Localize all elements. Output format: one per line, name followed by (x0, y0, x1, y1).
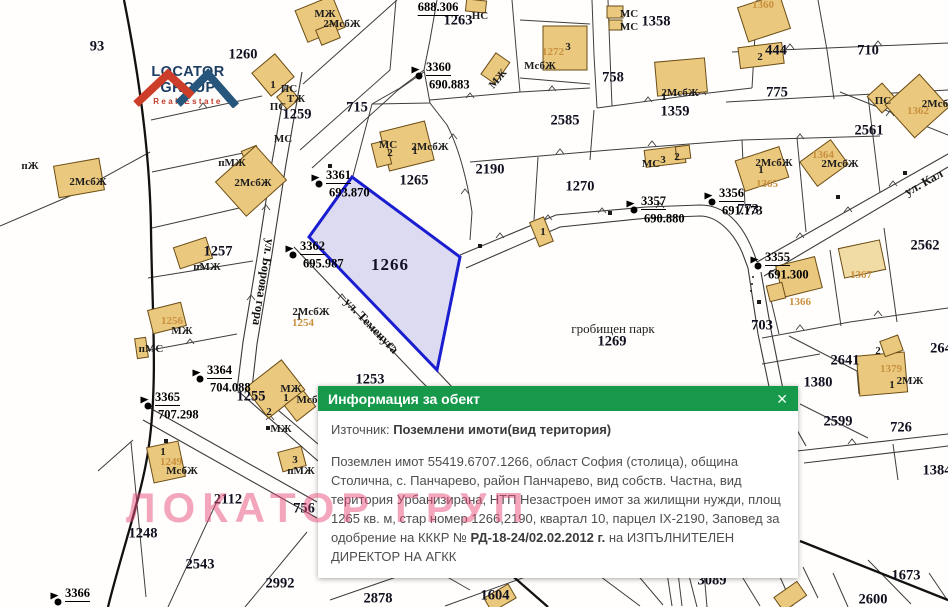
survey-point-icon (197, 376, 204, 383)
building-code: 2МсбЖ (323, 18, 360, 30)
parcel-number: 1270 (566, 179, 595, 196)
survey-point-elevation: 690.880 (644, 212, 685, 227)
parcel-number: 2878 (364, 591, 393, 607)
source-label: Източник: (331, 422, 393, 437)
survey-point-icon (290, 252, 297, 259)
survey-point-id: 3364 (207, 363, 232, 379)
building-number: 1366 (789, 296, 811, 308)
parcel-number-selected: 1266 (371, 255, 409, 275)
building-number: 1367 (850, 269, 872, 281)
parcel-number: 1257 (204, 244, 233, 261)
building-code: МС (642, 158, 660, 170)
parcel-number: 1384 (923, 463, 948, 480)
survey-point-icon (631, 207, 638, 214)
parcel-number: 2585 (551, 113, 580, 130)
building-code: пМЖ (287, 465, 315, 477)
popup-body: Източник: Поземлени имоти(вид територия)… (318, 411, 798, 578)
popup-title: Информация за обект (328, 391, 480, 407)
building-number: 1379 (880, 363, 902, 375)
object-info-popup: Информация за обект ✕ Източник: Поземлен… (318, 386, 798, 578)
parcel-number: 758 (602, 70, 624, 87)
elevation-label: 688.306 (418, 0, 459, 16)
building-number: 1364 (812, 149, 834, 161)
parcel-number: 2190 (476, 162, 505, 179)
parcel-number: 444 (765, 43, 787, 60)
building-code: ПС (270, 101, 287, 113)
building-number: 1365 (756, 178, 778, 190)
survey-point-id: 3360 (426, 60, 451, 76)
parcel-number: 775 (766, 85, 788, 102)
parcel-number: 726 (890, 420, 912, 437)
parcel-number: 2641 (831, 353, 860, 370)
building-code: 1 (540, 226, 546, 238)
building-code: Мсб (297, 394, 318, 406)
source-line: Източник: Поземлени имоти(вид територия) (331, 420, 785, 439)
building-code: пМЖ (193, 261, 221, 273)
survey-point-icon (416, 73, 423, 80)
parcel-number: 703 (751, 318, 773, 335)
building-code: МС (274, 133, 292, 145)
building-code: 2МЖ (897, 375, 924, 387)
building-code: ТЖ (287, 93, 305, 105)
survey-point-icon (316, 181, 323, 188)
building-code: 2 (875, 345, 881, 357)
order-number: РД-18-24/02.02.2012 г. (471, 530, 606, 545)
building-code: 1 (889, 379, 895, 391)
survey-point-icon (55, 599, 62, 606)
building-code: 2МсбЖ (69, 176, 106, 188)
building-code: 2МсбЖ (234, 177, 271, 189)
building-code: НС (472, 10, 489, 22)
parcel-number: 1248 (129, 526, 158, 543)
building-number: 1360 (752, 0, 774, 11)
parcel-number: 93 (90, 39, 105, 56)
parcel-number: 2561 (855, 123, 884, 140)
building-number: 1256 (161, 315, 183, 327)
parcel-number: 1259 (283, 107, 312, 124)
popup-header: Информация за обект ✕ (318, 386, 798, 411)
building-code: пМС (139, 343, 164, 355)
parcel-number: 2992 (266, 576, 295, 593)
survey-point-elevation: 691.173 (722, 204, 763, 219)
parcel-number: 264 (930, 341, 948, 358)
building-code: 2МсбЖ (755, 157, 792, 169)
building-code: МС (620, 21, 638, 33)
building-code: МсбЖ (524, 60, 556, 72)
parcel-number: 1380 (804, 375, 833, 392)
survey-point-elevation: 693.870 (329, 186, 370, 201)
survey-point-elevation: 695.987 (303, 257, 344, 272)
source-value: Поземлени имоти(вид територия) (393, 422, 611, 437)
survey-point-icon (755, 263, 762, 270)
building-code: 2 (387, 147, 393, 159)
building-code: пМЖ (218, 157, 246, 169)
building-number: 1254 (292, 317, 314, 329)
close-icon[interactable]: ✕ (776, 392, 788, 406)
survey-point-id: 3366 (65, 586, 90, 602)
parcel-number: 2543 (186, 557, 215, 574)
building-code: 2 (674, 151, 680, 163)
survey-point-id: 3361 (326, 168, 351, 184)
survey-point-icon (145, 403, 152, 410)
survey-point-id: 3356 (719, 186, 744, 202)
survey-point-id: 3357 (641, 194, 666, 210)
area-name: гробищен парк (571, 321, 654, 337)
parcel-number: 1359 (661, 104, 690, 121)
parcel-number: 2600 (859, 592, 888, 607)
building-code: 3 (660, 154, 666, 166)
building-code: 2 (266, 406, 272, 418)
building-code: пЖ (21, 160, 38, 172)
parcel-number: 1604 (481, 588, 510, 605)
building-number: 1272 (542, 46, 564, 58)
parcel-number: 715 (346, 100, 368, 117)
parcel-number: 710 (857, 43, 879, 60)
building-code: 2 (757, 51, 763, 63)
logo-mountains-icon (126, 62, 246, 108)
locator-group-logo: LOCATOR GROUP Real Estate (126, 62, 250, 106)
building-number: 1362 (907, 105, 929, 117)
survey-point-icon (709, 199, 716, 206)
survey-point-elevation: 690.883 (429, 78, 470, 93)
parcel-number: 1673 (892, 568, 921, 585)
parcel-number: 1265 (400, 173, 429, 190)
parcel-number: 756 (293, 501, 315, 518)
map-viewport: 9312601259715126312652190126612701358258… (0, 0, 948, 607)
building-code: МЖ (270, 423, 291, 435)
survey-point-elevation: 691.300 (768, 268, 809, 283)
building-code: 1 (270, 79, 276, 91)
parcel-number: 2562 (911, 238, 940, 255)
parcel-number: 2112 (214, 492, 242, 509)
parcel-number: 1358 (642, 14, 671, 31)
building-code: МС (620, 8, 638, 20)
survey-point-id: 3355 (765, 250, 790, 266)
parcel-number: 2599 (824, 414, 853, 431)
parcel-description: Поземлен имот 55419.6707.1266, област Со… (331, 452, 785, 566)
building-number: 1249 (160, 456, 182, 468)
survey-point-id: 3365 (155, 390, 180, 406)
parcel-number: 1260 (229, 47, 258, 64)
survey-point-elevation: 707.298 (158, 408, 199, 423)
survey-point-elevation: 704.088 (210, 381, 251, 396)
building-code: 2МсбЖ (661, 87, 698, 99)
building-code: 3 (565, 41, 571, 53)
building-code: 2МсбЖ (411, 141, 448, 153)
building-code: ПС (875, 95, 892, 107)
building-code: 1 (283, 392, 289, 404)
survey-point-id: 3362 (300, 239, 325, 255)
